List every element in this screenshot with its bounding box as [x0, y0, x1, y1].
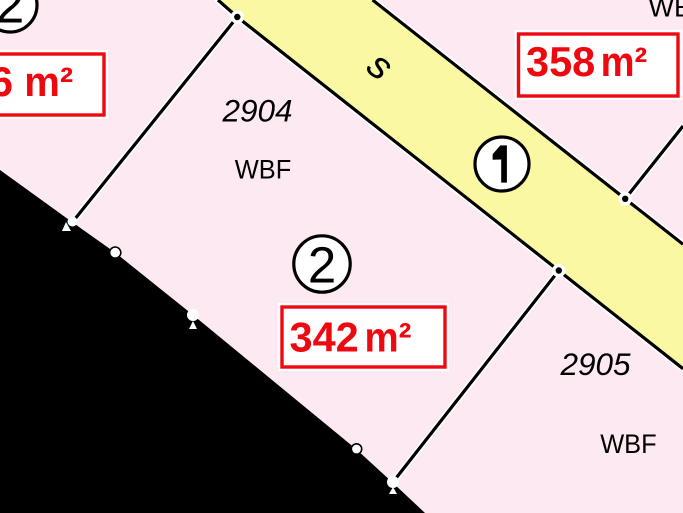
svg-text:342 m²: 342 m²: [290, 314, 412, 361]
svg-text:2: 2: [0, 0, 24, 34]
svg-text:2: 2: [308, 237, 336, 294]
svg-text:6 m²: 6 m²: [0, 58, 73, 105]
svg-text:2904: 2904: [222, 92, 293, 128]
svg-text:WBF: WBF: [600, 429, 657, 459]
svg-text:358 m²: 358 m²: [526, 38, 647, 85]
svg-text:WBF: WBF: [649, 0, 683, 22]
svg-text:WBF: WBF: [235, 154, 291, 184]
svg-text:2905: 2905: [560, 346, 632, 382]
